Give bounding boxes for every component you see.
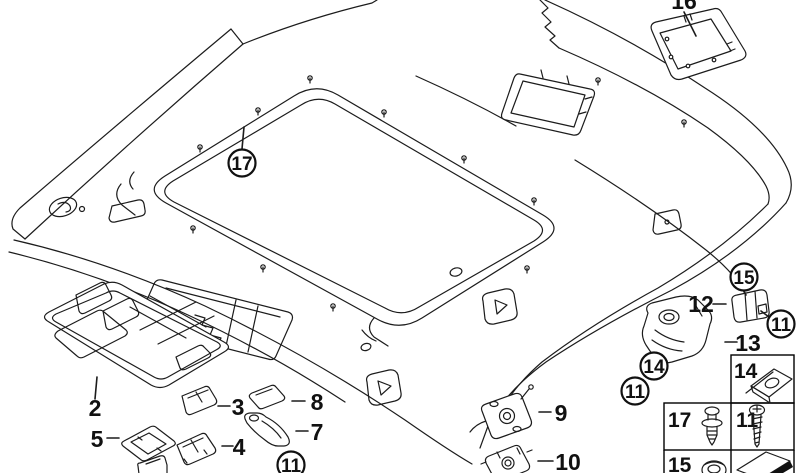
callout-11-bracket-label: 11 bbox=[771, 315, 792, 336]
callout-11-mount[interactable]: 11 bbox=[622, 378, 649, 405]
label-part-13[interactable]: 13 bbox=[735, 330, 761, 356]
label-part-10[interactable]: 10 bbox=[555, 449, 581, 473]
callout-17[interactable]: 17 bbox=[229, 150, 256, 177]
callout-11-handle[interactable]: 11 bbox=[278, 452, 305, 473]
legend-rivet-label: 17 bbox=[668, 409, 691, 432]
part-9-plate-drawing bbox=[482, 385, 534, 439]
part-2-console-drawing bbox=[45, 282, 229, 387]
callout-17-label: 17 bbox=[231, 154, 252, 175]
label-part-5[interactable]: 5 bbox=[91, 426, 104, 452]
part-16-panel bbox=[651, 9, 746, 80]
part-5-frame-drawing bbox=[122, 426, 176, 461]
label-part-9[interactable]: 9 bbox=[555, 400, 568, 426]
headliner-exploded-diagram: 16 12 13 2 3 8 5 4 7 9 10 17 15 11 14 11… bbox=[0, 0, 799, 473]
expansion-rivet-icon bbox=[702, 407, 722, 445]
label-part-8[interactable]: 8 bbox=[311, 389, 324, 415]
part-4-cover-drawing bbox=[177, 433, 216, 464]
callout-15[interactable]: 15 bbox=[731, 264, 758, 291]
part-8-pad-drawing bbox=[249, 385, 284, 409]
part-10-bracket-drawing bbox=[481, 445, 532, 473]
legend-speed-nut-label: 14 bbox=[734, 360, 758, 383]
parts-diagram-page: 16 12 13 2 3 8 5 4 7 9 10 17 15 11 14 11… bbox=[0, 0, 799, 473]
callout-11-mount-label: 11 bbox=[625, 382, 646, 403]
callout-11-handle-label: 11 bbox=[281, 456, 302, 473]
callout-14[interactable]: 14 bbox=[641, 353, 668, 380]
part-7-grab-handle-drawing bbox=[245, 413, 290, 446]
callout-14-label: 14 bbox=[643, 357, 665, 378]
label-part-4[interactable]: 4 bbox=[233, 434, 246, 460]
clip-pins bbox=[191, 76, 686, 311]
label-part-2[interactable]: 2 bbox=[89, 395, 102, 421]
label-part-12[interactable]: 12 bbox=[688, 291, 714, 317]
callout-15-label: 15 bbox=[733, 268, 755, 289]
callout-11-bracket[interactable]: 11 bbox=[768, 311, 795, 338]
part-12-bracket-drawing bbox=[732, 290, 769, 322]
label-part-16[interactable]: 16 bbox=[671, 0, 697, 14]
part-3-cover-drawing bbox=[182, 386, 217, 414]
label-part-3[interactable]: 3 bbox=[232, 394, 245, 420]
clip-arrow-icon bbox=[737, 452, 793, 473]
label-part-7[interactable]: 7 bbox=[311, 419, 324, 445]
plastic-nut-icon bbox=[702, 461, 726, 473]
legend-table: 14 17 11 15 bbox=[664, 355, 794, 473]
legend-nut-label: 15 bbox=[668, 454, 692, 473]
